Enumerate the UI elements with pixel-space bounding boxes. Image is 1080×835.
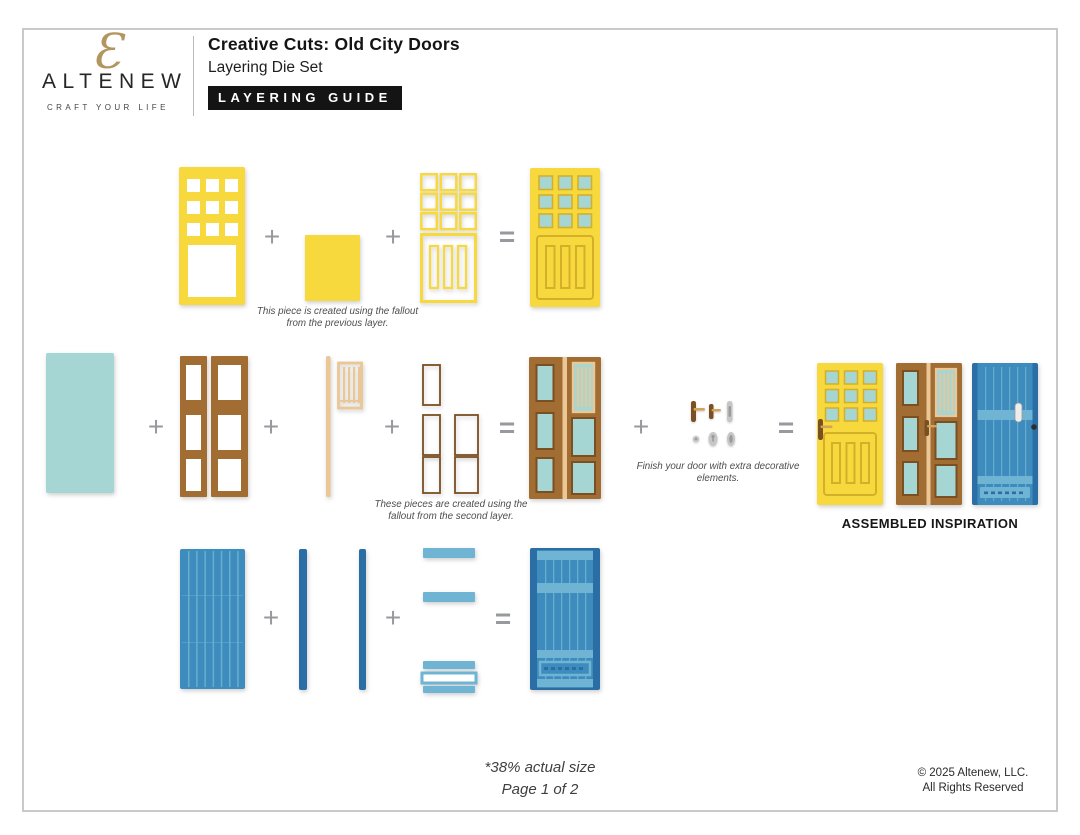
brown-door-assembled: [529, 357, 601, 499]
page-subtitle: Layering Die Set: [208, 59, 460, 77]
yellow-door-detail-die: [420, 173, 477, 303]
footer-copyright: © 2025 Altenew, LLC. All Rights Reserved: [893, 766, 1053, 796]
brown-door-fallout-pieces: [421, 364, 480, 494]
yellow-door-fallout-piece: [305, 235, 360, 301]
inspiration-yellow-door: [817, 363, 883, 505]
backing-panel-die: [46, 353, 114, 493]
blue-door-side-rail-die-1: [299, 549, 307, 690]
blue-door-side-rail-die-2: [359, 549, 366, 690]
layering-guide-page: Ɛ ALTENEW CRAFT YOUR LIFE Creative Cuts:…: [0, 0, 1080, 835]
plus-operator: +: [139, 411, 173, 443]
footer-scale-note: *38% actual size Page 1 of 2: [390, 757, 690, 801]
logo-ampersand-glyph: Ɛ: [92, 28, 122, 76]
copyright-line2: All Rights Reserved: [893, 781, 1053, 796]
altenew-logo: Ɛ ALTENEW CRAFT YOUR LIFE: [42, 44, 192, 112]
page-number: Page 1 of 2: [390, 779, 690, 801]
equals-operator: =: [490, 221, 524, 253]
equals-operator: =: [490, 412, 524, 444]
brown-door-trim-die: [326, 356, 364, 497]
plus-operator: +: [376, 602, 410, 634]
copyright-line1: © 2025 Altenew, LLC.: [893, 766, 1053, 781]
logo-tagline: CRAFT YOUR LIFE: [42, 103, 192, 112]
equals-operator: =: [486, 603, 520, 635]
inspiration-blue-door: [972, 363, 1038, 505]
blue-door-crossbar-dies: [420, 548, 478, 693]
assembled-inspiration-label: ASSEMBLED INSPIRATION: [810, 516, 1050, 531]
brown-door-frame-die: [180, 356, 248, 497]
blue-door-plank-die: [180, 549, 245, 689]
title-block: Creative Cuts: Old City Doors Layering D…: [208, 34, 460, 110]
layering-guide-badge: LAYERING GUIDE: [208, 86, 402, 110]
plus-operator: +: [375, 411, 409, 443]
equals-operator: =: [769, 412, 803, 444]
plus-operator: +: [376, 221, 410, 253]
page-title: Creative Cuts: Old City Doors: [208, 34, 460, 55]
scale-note: *38% actual size: [390, 757, 690, 779]
plus-operator: +: [254, 602, 288, 634]
fallout-caption-row1: This piece is created using the fallout …: [255, 306, 420, 330]
yellow-door-assembled: [530, 168, 600, 307]
plus-operator: +: [624, 411, 658, 443]
decorative-caption: Finish your door with extra decorative e…: [633, 461, 803, 485]
fallout-caption-row2: These pieces are created using the fallo…: [367, 499, 535, 523]
plus-operator: +: [254, 411, 288, 443]
header-divider: [193, 36, 194, 116]
plus-operator: +: [255, 221, 289, 253]
inspiration-brown-door: [896, 363, 962, 505]
door-hardware-die: [688, 398, 742, 454]
blue-door-assembled: [530, 548, 600, 690]
yellow-door-base-die: [179, 167, 245, 305]
